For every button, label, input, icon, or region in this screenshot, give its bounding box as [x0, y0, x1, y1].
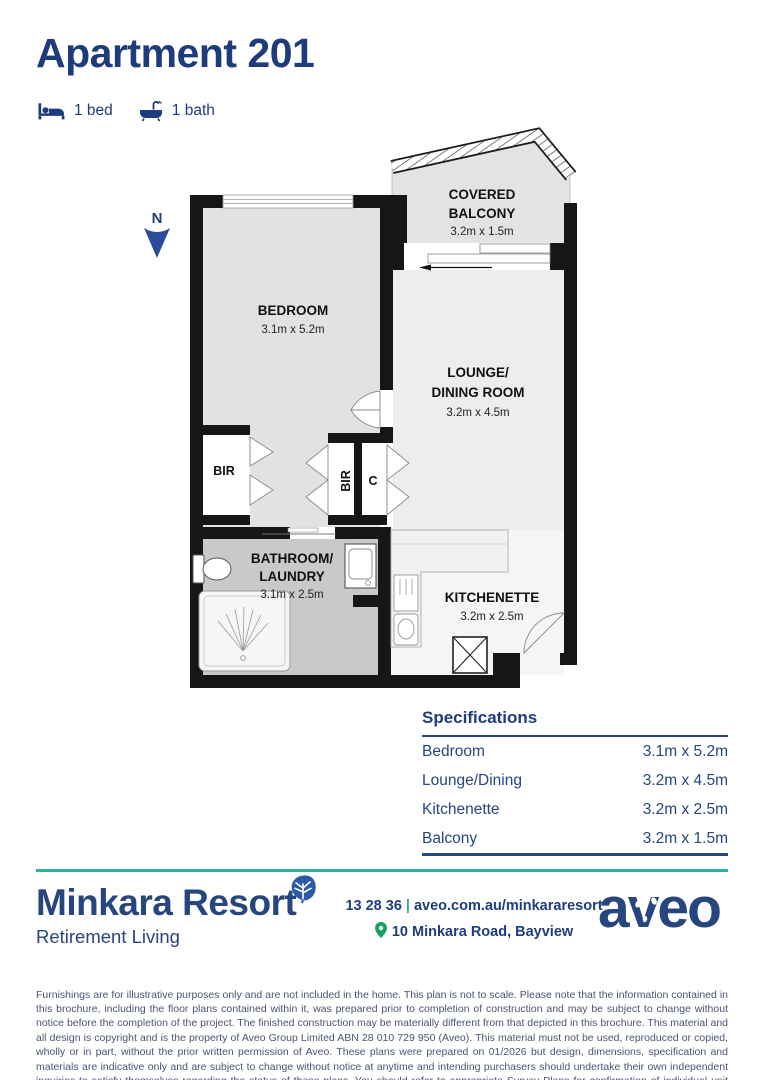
bed-icon [38, 102, 65, 120]
features-row: 1 bed 1 bath [38, 100, 215, 122]
spec-value: 3.2m x 4.5m [643, 772, 728, 790]
contact-separator: | [402, 898, 414, 914]
cupboard-label: C [368, 474, 377, 488]
specifications-table: Specifications Bedroom 3.1m x 5.2m Loung… [422, 708, 728, 856]
brand-tagline: Retirement Living [36, 926, 296, 948]
spec-label: Bedroom [422, 743, 485, 761]
page-title: Apartment 201 [36, 30, 314, 77]
spec-label: Kitchenette [422, 801, 500, 819]
specifications-title: Specifications [422, 708, 728, 737]
contact-block: 13 28 36|aveo.com.au/minkararesort 10 Mi… [343, 893, 605, 947]
lounge-dims: 3.2m x 4.5m [446, 407, 509, 419]
bedroom-window [223, 195, 353, 208]
spec-label: Lounge/Dining [422, 772, 522, 790]
bathroom-label-2: LAUNDRY [259, 569, 325, 584]
spec-row-balcony: Balcony 3.2m x 1.5m [422, 824, 728, 853]
location-pin-icon [375, 921, 387, 947]
spec-value: 3.2m x 1.5m [643, 830, 728, 848]
spec-row-kitchenette: Kitchenette 3.2m x 2.5m [422, 795, 728, 824]
bath-icon [139, 100, 163, 122]
contact-line-1: 13 28 36|aveo.com.au/minkararesort [343, 893, 605, 919]
contact-line-2: 10 Minkara Road, Bayview [343, 919, 605, 947]
footer-divider [36, 869, 728, 872]
floor-plan: COVERED BALCONY 3.2m x 1.5m BEDROOM 3.1m… [140, 125, 610, 715]
lounge-label-1: LOUNGE/ [447, 365, 509, 380]
spec-label: Balcony [422, 830, 477, 848]
spec-row-bedroom: Bedroom 3.1m x 5.2m [422, 737, 728, 766]
balcony-label-2: BALCONY [449, 206, 516, 221]
bir-middle-label: BIR [339, 470, 353, 492]
website-url: aveo.com.au/minkararesort [414, 898, 603, 914]
brand-name: Minkara Resort [36, 882, 296, 925]
address-text: 10 Minkara Road, Bayview [392, 924, 573, 940]
kitchenette-label: KITCHENETTE [445, 590, 540, 605]
bathroom-dims: 3.1m x 2.5m [260, 589, 323, 601]
north-label: N [152, 210, 163, 227]
bath-count-label: 1 bath [172, 102, 215, 120]
bedroom-label: BEDROOM [258, 303, 329, 318]
phone-number: 13 28 36 [345, 898, 401, 914]
kitchenette-dims: 3.2m x 2.5m [460, 611, 523, 623]
aveo-logo: aveo [598, 878, 738, 942]
spec-value: 3.2m x 2.5m [643, 801, 728, 819]
sliding-door [404, 243, 550, 271]
aveo-leaf-v-decoration [630, 890, 664, 938]
disclaimer-text: Furnishings are for illustrative purpose… [36, 988, 728, 1080]
bedroom-dims: 3.1m x 5.2m [261, 324, 324, 336]
brochure-page: Apartment 201 1 bed 1 bath [0, 0, 764, 1080]
brand-block: Minkara Resort Retirement Living [36, 882, 296, 948]
balcony-label-1: COVERED [449, 187, 516, 202]
bir-left-label: BIR [213, 464, 235, 478]
lounge-label-2: DINING ROOM [432, 385, 525, 400]
bathroom-label-1: BATHROOM/ [251, 551, 333, 566]
spec-row-lounge: Lounge/Dining 3.2m x 4.5m [422, 766, 728, 795]
monstera-leaf-icon [288, 873, 318, 911]
north-arrow-icon: N [144, 210, 170, 258]
bed-count-label: 1 bed [74, 102, 113, 120]
balcony-dims: 3.2m x 1.5m [450, 226, 513, 238]
spec-value: 3.1m x 5.2m [643, 743, 728, 761]
